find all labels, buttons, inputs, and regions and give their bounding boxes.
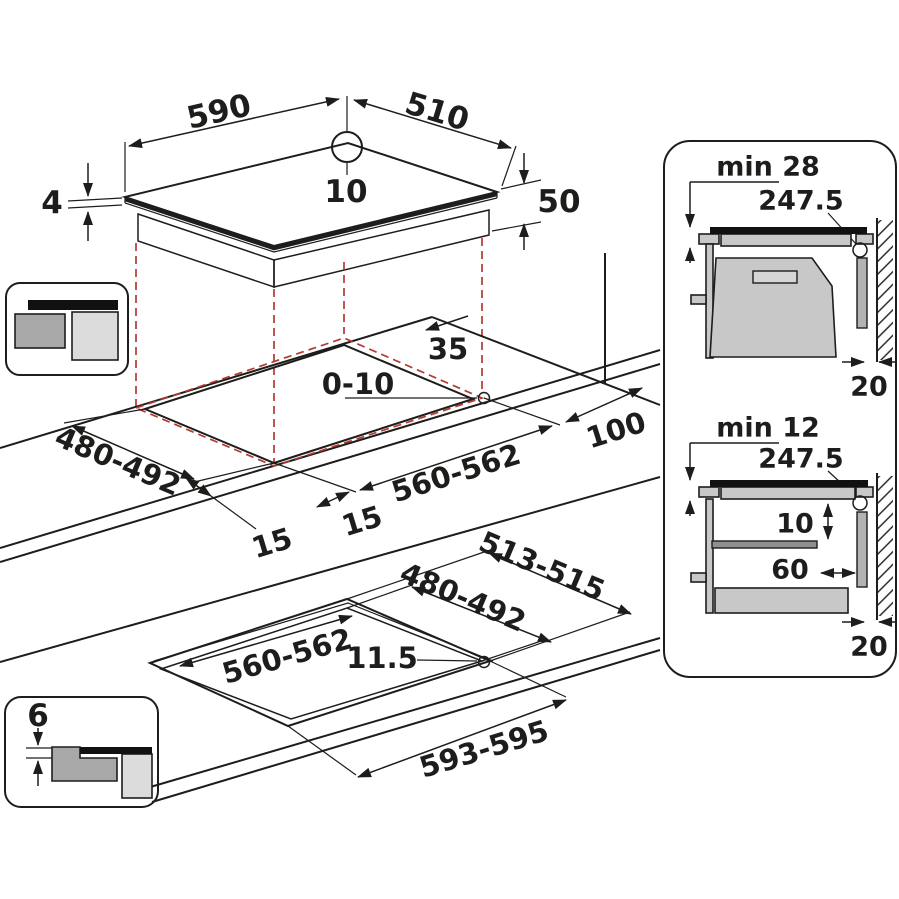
hob-glass-top <box>125 143 497 246</box>
side-view-panel: min 28 247.5 20 min 12 <box>664 141 897 677</box>
dim-front-margin-left: 15 <box>248 521 297 565</box>
cutout-outline <box>145 345 473 463</box>
overlay-pictogram <box>6 283 128 375</box>
drawer-cross-section <box>715 588 848 613</box>
dim-glass-thickness: 4 <box>41 185 63 221</box>
shelf-cross-section <box>712 541 817 548</box>
dim-center-distance-bottom: 247.5 <box>758 444 843 475</box>
dim-cutout-width: 560-562 <box>387 437 524 509</box>
dim-edge-gap: 0-10 <box>322 367 395 401</box>
wall-hatching-top <box>878 220 893 360</box>
dim-center-distance-top: 247.5 <box>758 186 843 217</box>
dim-shelf-setback: 60 <box>771 555 809 586</box>
dim-hob-depth: 510 <box>401 85 473 138</box>
dim-min-clearance-bottom: min 12 <box>716 413 820 444</box>
hob-cross-section-top <box>710 227 867 234</box>
side-view-bottom: min 12 247.5 10 60 20 <box>690 413 897 663</box>
dim-recess-width: 593-595 <box>415 713 552 784</box>
dim-back-clearance: 35 <box>428 332 468 366</box>
diagram-canvas: 10 590 510 4 50 <box>0 0 899 899</box>
dim-corner-radius: 11.5 <box>346 641 418 675</box>
dim-hob-center: 10 <box>324 174 367 210</box>
installation-diagram: 10 590 510 4 50 <box>0 0 899 899</box>
dim-min-clearance-top: min 28 <box>716 152 820 183</box>
dim-front-margin-right: 15 <box>338 499 387 543</box>
side-view-top: min 28 247.5 20 <box>690 152 897 403</box>
dim-cutout-depth: 480-492 <box>50 419 186 502</box>
dim-body-height: 50 <box>537 184 580 220</box>
flush-pictogram: 6 <box>5 697 158 807</box>
dim-right-clearance: 100 <box>582 405 650 456</box>
dim-rear-gap-top: 20 <box>850 372 888 403</box>
hob-cross-section-bottom <box>710 480 868 487</box>
dim-hob-width: 590 <box>183 87 254 137</box>
dim-shelf-clearance: 10 <box>776 509 814 540</box>
wall-hatching-bottom <box>878 476 893 616</box>
dim-rear-gap-bottom: 20 <box>850 632 888 663</box>
dim-flush-width: 560-562 <box>218 621 355 690</box>
